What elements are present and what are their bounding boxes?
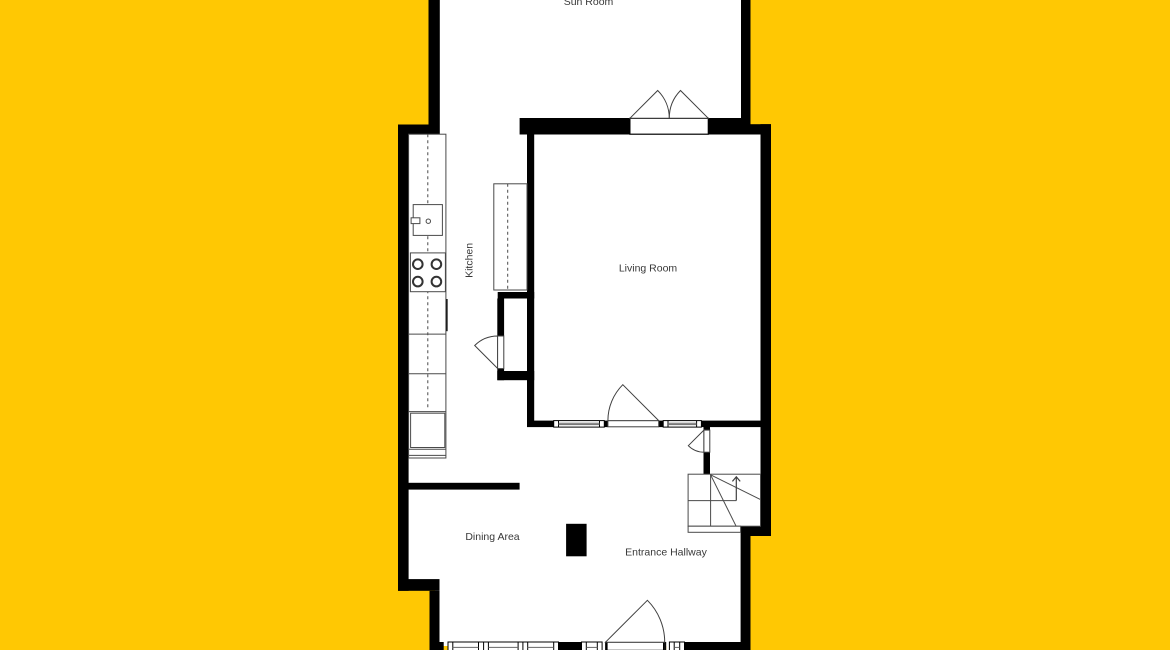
svg-text:Living Room: Living Room	[619, 263, 678, 275]
svg-text:Dining Area: Dining Area	[465, 531, 519, 543]
svg-text:Entrance Hallway: Entrance Hallway	[625, 547, 707, 559]
svg-text:Sun Room: Sun Room	[564, 0, 614, 8]
svg-text:Kitchen: Kitchen	[463, 243, 475, 278]
